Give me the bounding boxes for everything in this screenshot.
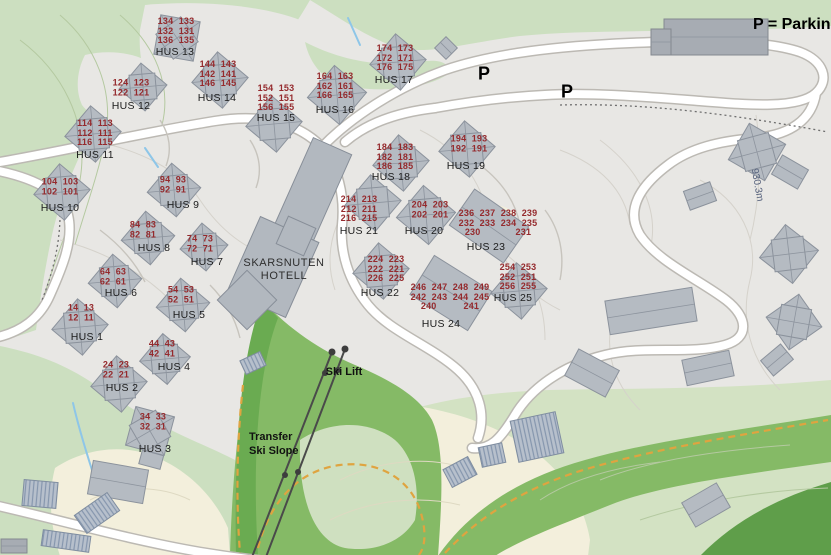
building bbox=[764, 292, 824, 352]
building bbox=[1, 539, 27, 553]
building bbox=[683, 182, 716, 210]
house-hus-24 bbox=[410, 255, 492, 330]
map-canvas bbox=[0, 0, 831, 555]
building bbox=[605, 287, 697, 334]
house-hus-25 bbox=[489, 261, 550, 322]
house-hus-19 bbox=[437, 119, 498, 180]
house-hus-4 bbox=[138, 332, 193, 387]
house-hus-6 bbox=[86, 252, 144, 310]
house-hus-8 bbox=[119, 209, 177, 267]
house-hus-23 bbox=[449, 189, 528, 263]
house-hus-7 bbox=[178, 221, 229, 272]
building bbox=[510, 412, 564, 463]
house-hus-1 bbox=[50, 297, 111, 358]
building bbox=[757, 222, 820, 285]
parking-garage-annex bbox=[651, 29, 671, 55]
building bbox=[478, 443, 506, 468]
parking-legend: P = Parking bbox=[753, 16, 831, 34]
building bbox=[682, 350, 734, 385]
house-hus-13 bbox=[152, 13, 202, 63]
house-hus-5 bbox=[154, 276, 212, 334]
house-hus-9 bbox=[145, 161, 203, 219]
transfer-ski-slope-label: TransferSki Slope bbox=[249, 430, 299, 458]
resort-map: SKARSNUTENHOTELL Ski Lift TransferSki Sl… bbox=[0, 0, 831, 555]
building bbox=[22, 480, 58, 509]
house-hus-20 bbox=[394, 183, 458, 247]
